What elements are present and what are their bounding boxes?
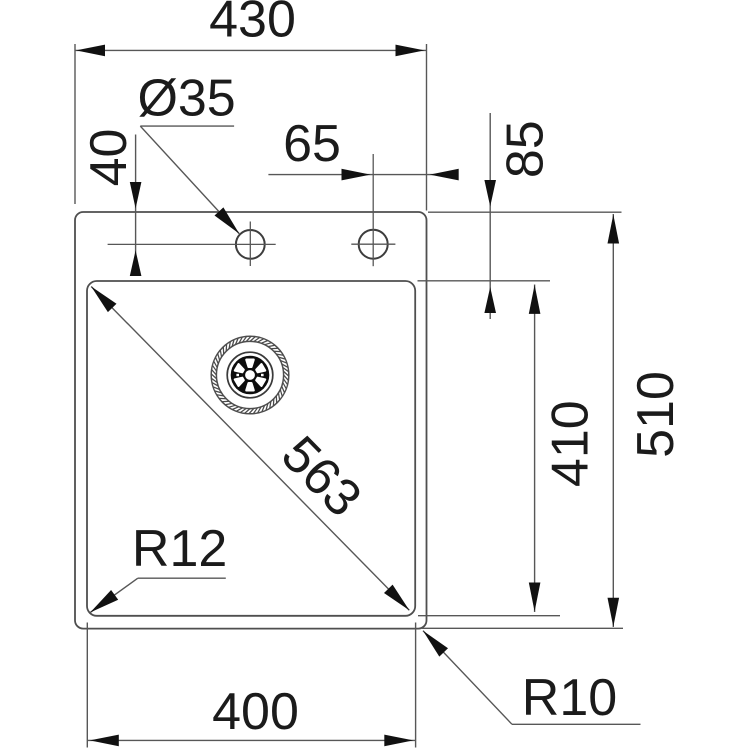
svg-text:65: 65 — [283, 115, 341, 173]
svg-text:Ø35: Ø35 — [137, 69, 235, 127]
svg-text:510: 510 — [627, 371, 685, 458]
svg-text:85: 85 — [497, 120, 555, 178]
svg-text:R10: R10 — [522, 669, 617, 727]
svg-text:410: 410 — [541, 400, 599, 487]
svg-text:430: 430 — [209, 0, 296, 49]
svg-text:40: 40 — [80, 129, 138, 187]
svg-text:R12: R12 — [132, 520, 227, 578]
svg-text:400: 400 — [212, 683, 299, 741]
